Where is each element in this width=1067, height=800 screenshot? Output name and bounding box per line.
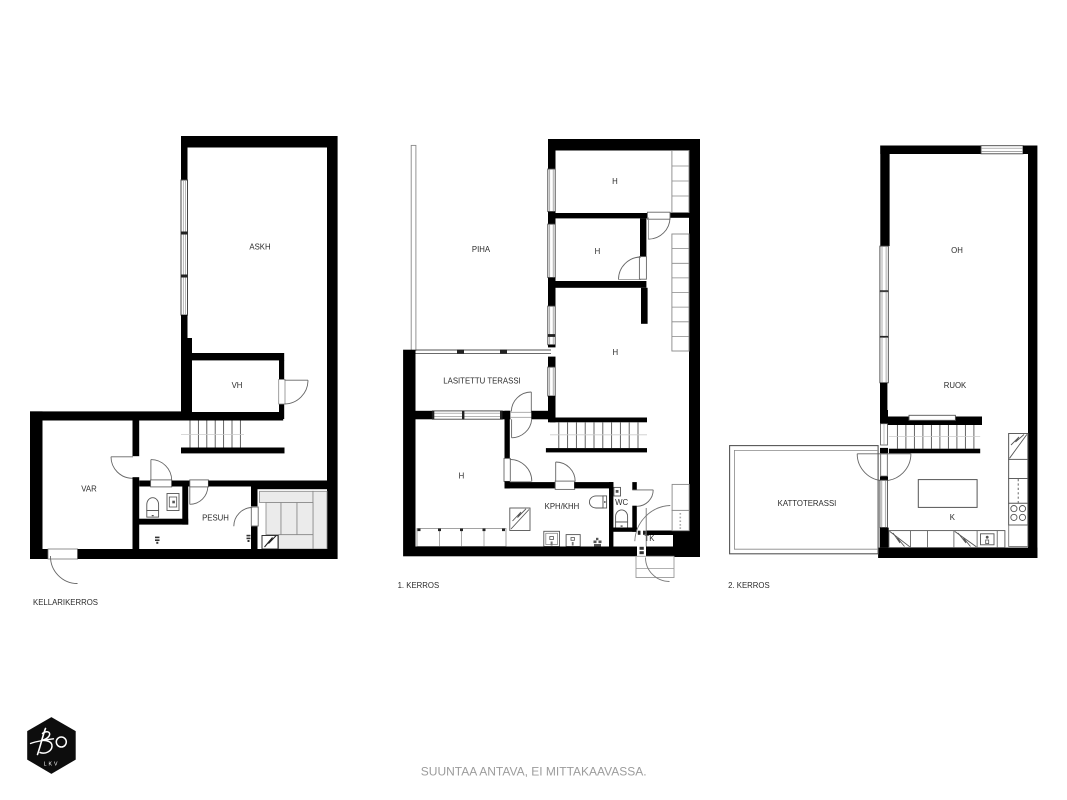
svg-text:2. KERROS: 2. KERROS [728, 581, 770, 590]
svg-text:H: H [459, 472, 465, 481]
svg-text:PESUH: PESUH [202, 514, 229, 523]
svg-text:VH: VH [232, 381, 243, 390]
svg-text:KPH/KHH: KPH/KHH [545, 502, 580, 511]
svg-text:LASITETTU TERASSI: LASITETTU TERASSI [443, 377, 520, 386]
svg-text:VAR: VAR [81, 485, 97, 494]
svg-text:K: K [950, 513, 956, 522]
svg-text:H: H [612, 177, 618, 186]
svg-text:SUUNTAA ANTAVA, EI MITTAKAAVAS: SUUNTAA ANTAVA, EI MITTAKAAVASSA. [421, 764, 647, 778]
svg-text:H: H [612, 348, 618, 357]
svg-text:1. KERROS: 1. KERROS [398, 581, 440, 590]
svg-text:WC: WC [615, 498, 628, 507]
svg-text:PIHA: PIHA [472, 245, 491, 254]
svg-text:ASKH: ASKH [249, 243, 270, 252]
svg-text:RUOK: RUOK [944, 381, 967, 390]
svg-text:H: H [595, 247, 601, 256]
svg-text:LKV: LKV [44, 762, 60, 768]
svg-text:KELLARIKERROS: KELLARIKERROS [33, 598, 98, 607]
svg-text:OH: OH [951, 246, 963, 255]
svg-text:KATTOTERASSI: KATTOTERASSI [778, 499, 837, 508]
